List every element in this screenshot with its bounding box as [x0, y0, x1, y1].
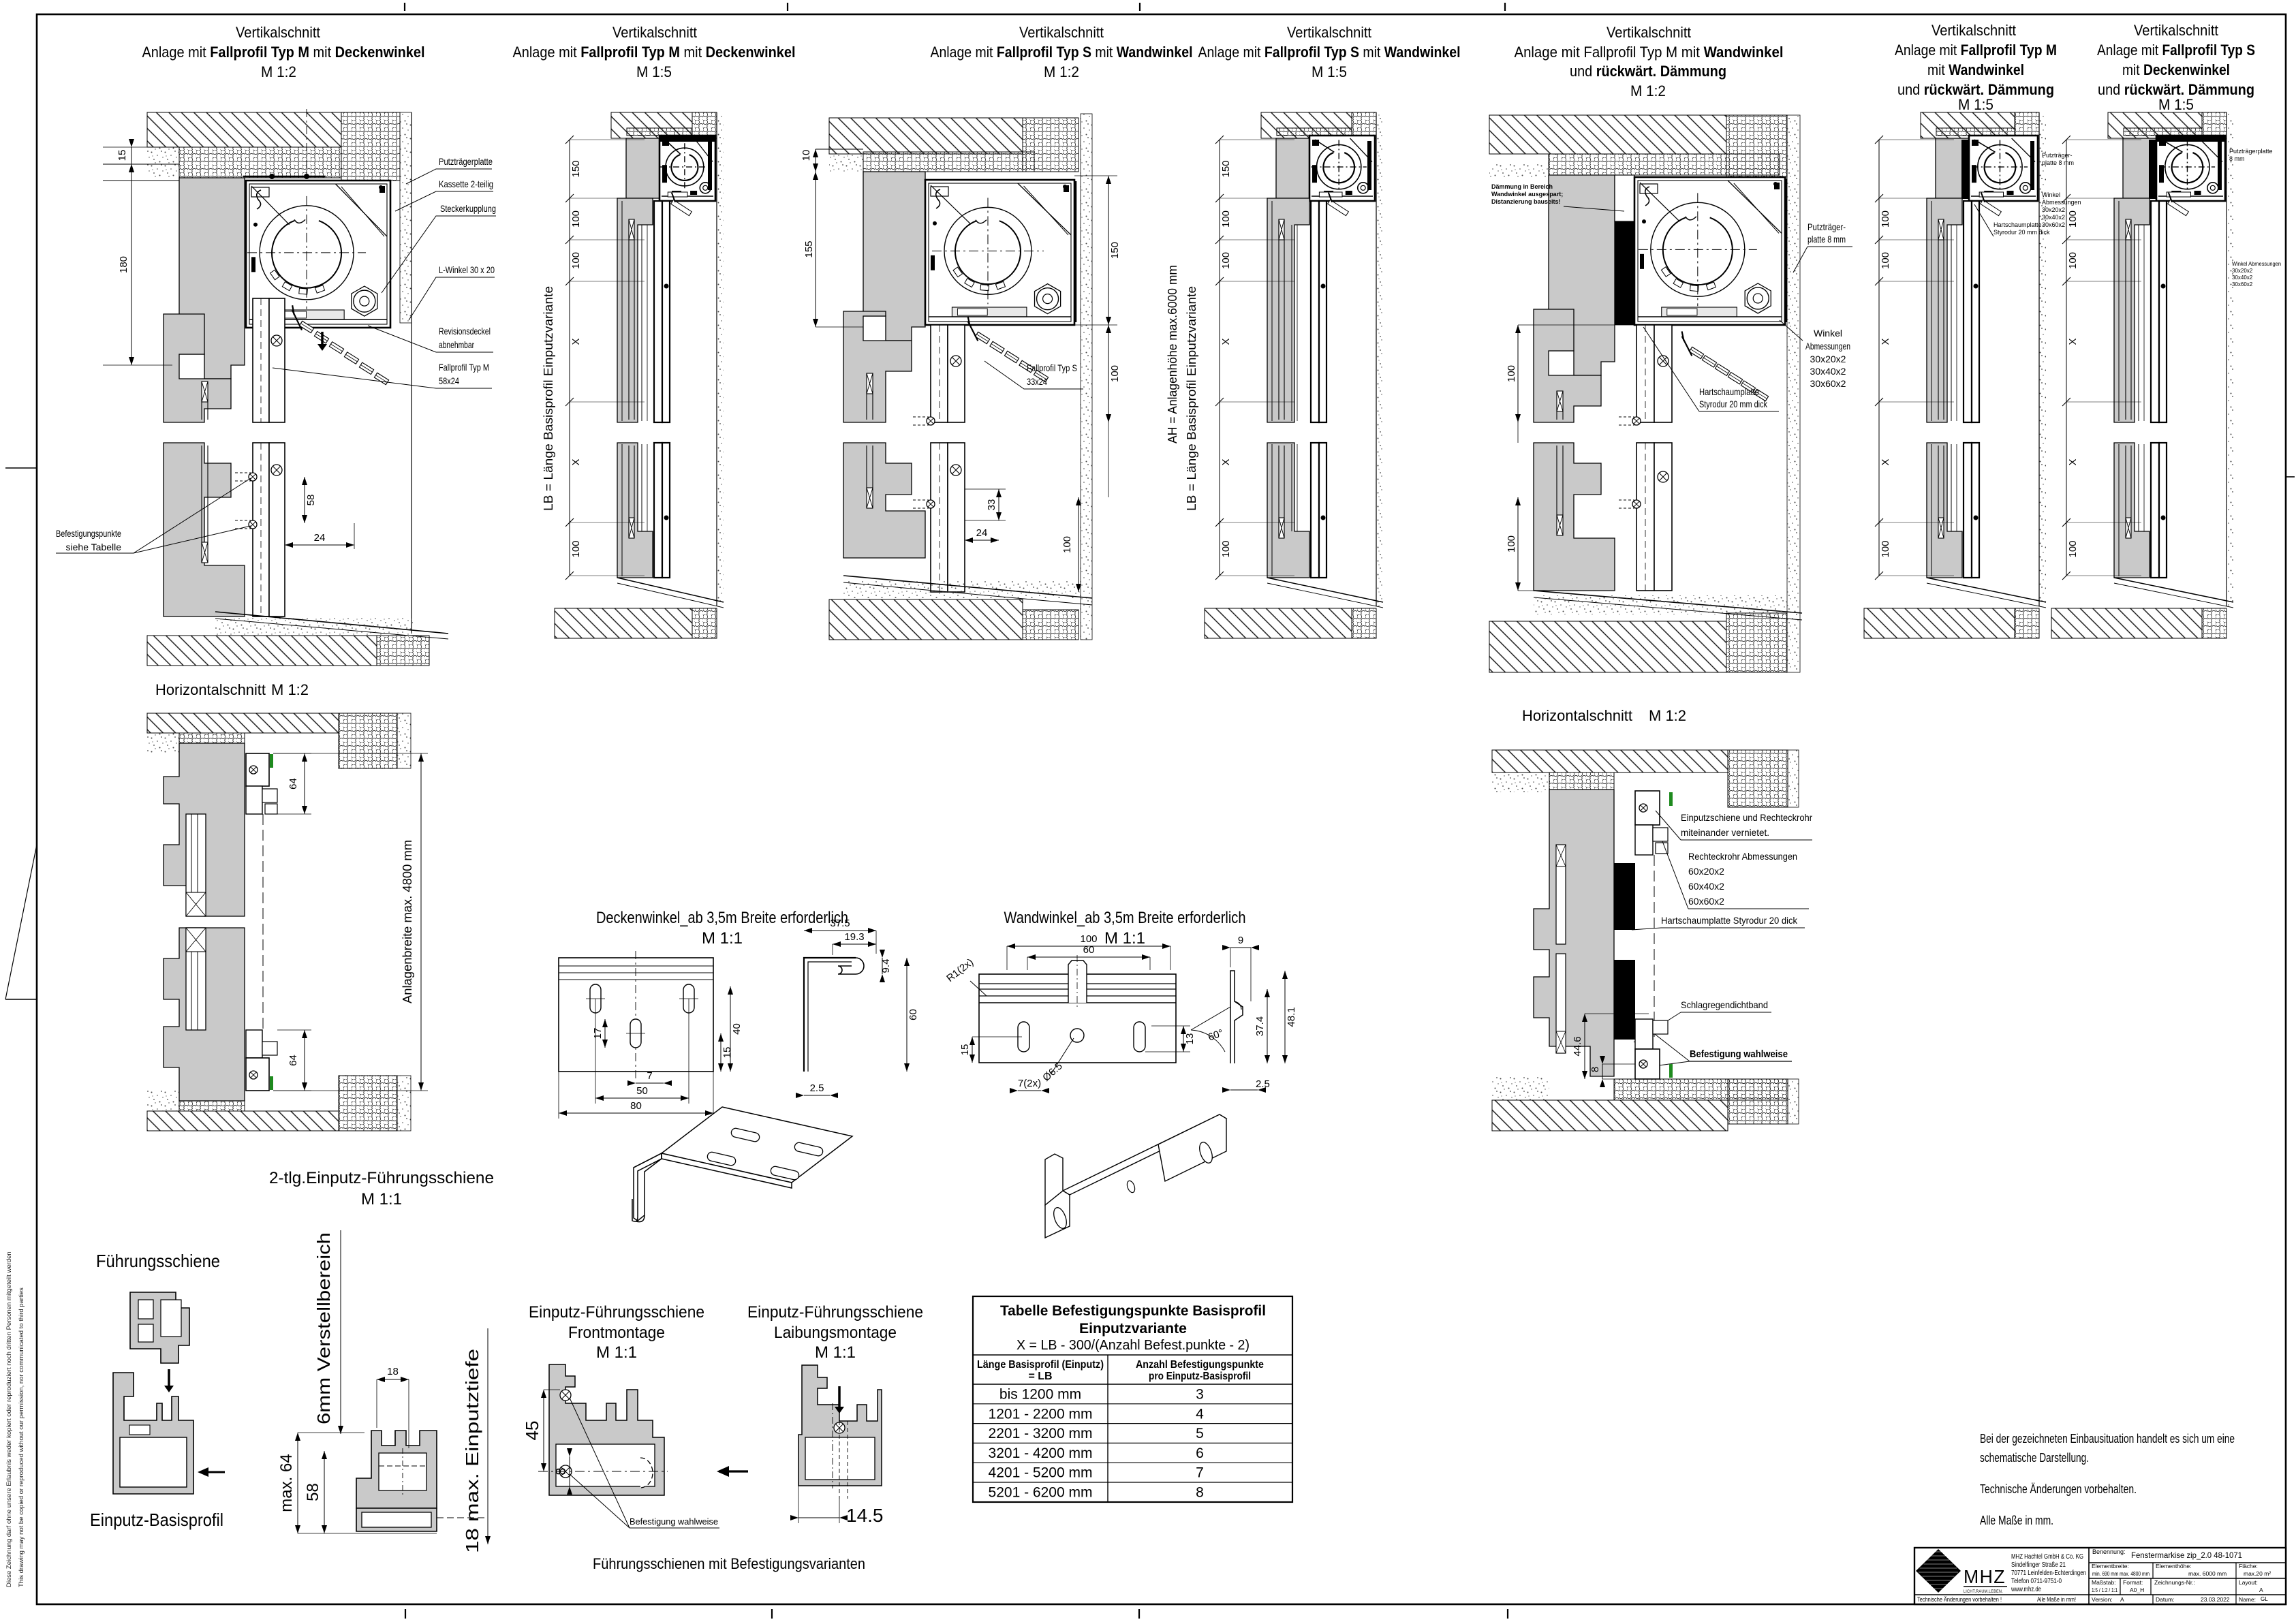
svg-text:Steckerkupplung: Steckerkupplung: [440, 203, 496, 214]
svg-text:X: X: [2067, 338, 2079, 345]
svg-text:100: 100: [2067, 210, 2079, 228]
svg-text:This drawing may not be copied: This drawing may not be copied or reprod…: [18, 1287, 25, 1587]
svg-text:mit Deckenwinkel: mit Deckenwinkel: [2122, 61, 2230, 78]
svg-text:Revisionsdeckel: Revisionsdeckel: [439, 326, 491, 337]
svg-text:Datum:: Datum:: [2156, 1596, 2174, 1603]
svg-text:Technische Änderungen vorbehal: Technische Änderungen vorbehalten.: [1980, 1482, 2137, 1496]
svg-text:Fallprofil Typ S: Fallprofil Typ S: [1027, 362, 1077, 373]
svg-text:M 1:2: M 1:2: [1630, 82, 1666, 99]
svg-text:AH = Anlagenhöhe max.6000 mm: AH = Anlagenhöhe max.6000 mm: [1166, 265, 1179, 443]
svg-text:150: 150: [1109, 242, 1121, 259]
svg-text:LB = Länge Basisprofil Einputz: LB = Länge Basisprofil Einputzvariante: [1185, 286, 1198, 511]
svg-text:100: 100: [1109, 365, 1121, 382]
svg-text:100: 100: [1880, 540, 1891, 557]
svg-text:3201 - 4200 mm: 3201 - 4200 mm: [989, 1446, 1093, 1461]
svg-text:Diese Zeichnung darf ohne unse: Diese Zeichnung darf ohne unsere Erlaubn…: [5, 1251, 13, 1587]
svg-text:www.mhz.de: www.mhz.de: [2011, 1586, 2041, 1593]
svg-text:Maßstab:: Maßstab:: [2092, 1579, 2115, 1586]
svg-text:Anlage mit Fallprofil Typ M mi: Anlage mit Fallprofil Typ M mit Deckenwi…: [142, 44, 425, 61]
svg-text:44.6: 44.6: [1572, 1036, 1583, 1056]
svg-text:100: 100: [2067, 540, 2079, 557]
svg-text:Hartschaumplatte Styrodur 20 d: Hartschaumplatte Styrodur 20 dick: [1661, 915, 1798, 926]
svg-text:24: 24: [976, 527, 988, 539]
svg-text:30x40x2: 30x40x2: [2232, 275, 2253, 281]
svg-text:Bei der gezeichneten Einbausit: Bei der gezeichneten Einbausituation han…: [1980, 1432, 2235, 1446]
svg-text:Anlage mit Fallprofil Typ S mi: Anlage mit Fallprofil Typ S mit Wandwink…: [1198, 44, 1461, 61]
svg-text:Name:: Name:: [2239, 1596, 2256, 1603]
svg-text:Elementhöhe:: Elementhöhe:: [2156, 1563, 2191, 1570]
svg-text:30x60x2: 30x60x2: [2042, 221, 2065, 228]
svg-text:Putzträgerplatte: Putzträgerplatte: [439, 156, 493, 167]
svg-text:M 1:2: M 1:2: [1649, 707, 1686, 724]
svg-text:13: 13: [1184, 1033, 1196, 1045]
svg-text:Anlage mit Fallprofil Typ M mi: Anlage mit Fallprofil Typ M mit Wandwink…: [1515, 44, 1784, 61]
svg-text:Fläche:: Fläche:: [2239, 1563, 2258, 1570]
svg-text:100: 100: [1506, 535, 1517, 552]
svg-text:M 1:1: M 1:1: [815, 1343, 856, 1362]
svg-text:siehe Tabelle: siehe Tabelle: [66, 542, 122, 552]
svg-text:abnehmbar: abnehmbar: [439, 339, 474, 350]
svg-text:X: X: [1220, 458, 1232, 465]
svg-text:Putzträgerplatte: Putzträgerplatte: [2229, 148, 2273, 155]
svg-text:60: 60: [1083, 944, 1095, 956]
svg-text:Tabelle Befestigungspunkte Bas: Tabelle Befestigungspunkte Basisprofil: [1000, 1303, 1266, 1319]
svg-text:Einputz-Basisprofil: Einputz-Basisprofil: [90, 1510, 223, 1530]
svg-text:Format:: Format:: [2123, 1579, 2143, 1586]
svg-text:Einputzvariante: Einputzvariante: [1079, 1321, 1187, 1337]
svg-text:miteinander vernietet.: miteinander vernietet.: [1681, 827, 1769, 838]
svg-text:Alle Maße in mm.: Alle Maße in mm.: [1980, 1514, 2053, 1527]
svg-text:18: 18: [387, 1366, 399, 1377]
svg-text:Kassette 2-teilig: Kassette 2-teilig: [439, 178, 493, 189]
svg-text:Einputzschiene und Rechteckroh: Einputzschiene und Rechteckrohr: [1681, 812, 1812, 823]
svg-text:Styrodur 20 mm dick: Styrodur 20 mm dick: [1699, 399, 1768, 409]
svg-text:Befestigung wahlweise: Befestigung wahlweise: [630, 1516, 718, 1527]
svg-text:bis 1200 mm: bis 1200 mm: [999, 1387, 1081, 1403]
svg-text:30x40x2: 30x40x2: [1810, 366, 1846, 377]
svg-text:Laibungsmontage: Laibungsmontage: [774, 1324, 897, 1342]
svg-text:platte 8 mm: platte 8 mm: [2042, 159, 2074, 166]
svg-text:X: X: [570, 458, 582, 465]
svg-text:60x40x2: 60x40x2: [1688, 881, 1724, 892]
svg-text:60x20x2: 60x20x2: [1688, 866, 1724, 877]
svg-text:18 max. Einputztiefe: 18 max. Einputztiefe: [462, 1349, 482, 1553]
svg-text:Winkel Abmessungen: Winkel Abmessungen: [2232, 261, 2281, 267]
svg-text:7: 7: [1196, 1465, 1204, 1481]
svg-text:100: 100: [570, 540, 582, 557]
svg-text:30x20x2: 30x20x2: [1810, 354, 1846, 364]
svg-text:M 1:1: M 1:1: [596, 1343, 637, 1362]
svg-text:7: 7: [647, 1070, 652, 1082]
svg-text:MHZ Hachtel GmbH & Co. KG: MHZ Hachtel GmbH & Co. KG: [2011, 1553, 2083, 1561]
svg-text:Schlagregendichtband: Schlagregendichtband: [1681, 999, 1768, 1010]
svg-text:M 1:2: M 1:2: [271, 681, 309, 698]
svg-text:64: 64: [288, 778, 299, 790]
svg-text:Sindelfinger Straße 21: Sindelfinger Straße 21: [2011, 1561, 2066, 1569]
svg-text:X: X: [570, 338, 582, 345]
svg-text:4: 4: [1196, 1406, 1204, 1422]
svg-text:2201 - 3200 mm: 2201 - 3200 mm: [989, 1426, 1093, 1441]
svg-text:Rechteckrohr Abmessungen: Rechteckrohr Abmessungen: [1688, 851, 1797, 862]
svg-text:9.4: 9.4: [880, 959, 892, 973]
svg-text:45: 45: [522, 1421, 542, 1441]
svg-text:Putzträger-: Putzträger-: [2042, 152, 2073, 159]
svg-text:M 1:2: M 1:2: [261, 63, 296, 80]
svg-text:Führungsschiene: Führungsschiene: [96, 1251, 220, 1271]
svg-text:37.4: 37.4: [1254, 1016, 1266, 1036]
svg-text:X: X: [2067, 458, 2079, 465]
svg-text:100: 100: [570, 252, 582, 269]
svg-text:Fallprofil Typ M: Fallprofil Typ M: [439, 362, 489, 373]
svg-text:Wandwinkel ausgespart;: Wandwinkel ausgespart;: [1491, 191, 1563, 198]
svg-text:5201 - 6200 mm: 5201 - 6200 mm: [989, 1485, 1093, 1501]
svg-text:8 mm: 8 mm: [2229, 155, 2245, 162]
svg-text:GL: GL: [2261, 1596, 2268, 1602]
svg-text:30x60x2: 30x60x2: [1810, 378, 1846, 389]
svg-text:Abmessungen: Abmessungen: [2042, 199, 2081, 206]
svg-text:Putzträger-: Putzträger-: [1808, 221, 1846, 232]
svg-text:100: 100: [1880, 252, 1891, 269]
svg-text:Hartschaumplatte: Hartschaumplatte: [1699, 386, 1759, 397]
svg-text:4201 - 5200 mm: 4201 - 5200 mm: [989, 1465, 1093, 1481]
svg-text:14.5: 14.5: [846, 1505, 884, 1526]
svg-text:Anlage mit Fallprofil Typ S: Anlage mit Fallprofil Typ S: [2097, 42, 2255, 59]
svg-text:A: A: [2259, 1587, 2263, 1593]
svg-text:LB = Länge Basisprofil Einputz: LB = Länge Basisprofil Einputzvariante: [542, 286, 555, 511]
svg-text:Fenstermarkise zip_2.0 48-1: Fenstermarkise zip_2.0 48-1071: [2131, 1552, 2242, 1560]
svg-text:Anlage mit Fallprofil Typ M mi: Anlage mit Fallprofil Typ M mit Deckenwi…: [513, 44, 796, 61]
svg-text:60: 60: [907, 1009, 919, 1020]
svg-text:1201 - 2200 mm: 1201 - 2200 mm: [989, 1406, 1093, 1422]
svg-text:Layout:: Layout:: [2239, 1579, 2258, 1586]
svg-text:58x24: 58x24: [439, 375, 459, 386]
svg-text:Führungsschienen mit Befestigu: Führungsschienen mit Befestigungsvariant…: [593, 1555, 865, 1572]
svg-text:Technische Änderungen vorbehal: Technische Änderungen vorbehalten !: [1917, 1596, 2002, 1603]
svg-text:37.5: 37.5: [830, 918, 850, 929]
svg-text:19.3: 19.3: [844, 931, 864, 943]
svg-text:Elementbreite:: Elementbreite:: [2092, 1563, 2129, 1570]
svg-text:100: 100: [1506, 365, 1517, 382]
svg-text:Befestigung wahlweise: Befestigung wahlweise: [1690, 1048, 1788, 1060]
svg-text:180: 180: [118, 256, 129, 273]
svg-text:100: 100: [570, 210, 582, 228]
svg-text:Länge Basisprofil (Einputz): Länge Basisprofil (Einputz): [977, 1359, 1104, 1371]
svg-text:Deckenwinkel_ab 3,5m Breite er: Deckenwinkel_ab 3,5m Breite erforderlich: [596, 909, 848, 927]
svg-text:M 1:1: M 1:1: [1104, 929, 1145, 948]
svg-text:max. 64: max. 64: [277, 1454, 296, 1512]
svg-text:24: 24: [314, 532, 326, 544]
svg-text:6mm Verstellbereich: 6mm Verstellbereich: [313, 1232, 334, 1424]
svg-text:Frontmontage: Frontmontage: [568, 1324, 665, 1342]
svg-text:Benennung:: Benennung:: [2092, 1548, 2126, 1555]
svg-text:Vertikalschnitt: Vertikalschnitt: [236, 24, 320, 41]
svg-text:M 1:2: M 1:2: [1044, 63, 1079, 80]
svg-text:Winkel: Winkel: [2042, 191, 2060, 198]
svg-text:Anlage mit Fallprofil Typ M: Anlage mit Fallprofil Typ M: [1895, 42, 2057, 59]
svg-text:Dämmung in Bereich: Dämmung in Bereich: [1491, 183, 1553, 190]
svg-text:40: 40: [731, 1023, 743, 1035]
svg-text:Horizontalschnitt: Horizontalschnitt: [1522, 707, 1632, 724]
svg-text:100: 100: [1220, 252, 1232, 269]
svg-text:X: X: [1220, 338, 1232, 345]
svg-text:50: 50: [636, 1085, 648, 1097]
svg-text:Abmessungen: Abmessungen: [1805, 341, 1850, 352]
svg-text:M 1:1: M 1:1: [702, 929, 743, 948]
svg-text:M 1:5: M 1:5: [1312, 63, 1347, 80]
svg-text:Vertikalschnitt: Vertikalschnitt: [612, 24, 697, 41]
svg-text:Vertikalschnitt: Vertikalschnitt: [1019, 24, 1104, 41]
svg-text:Anlagenbreite max. 4800 mm: Anlagenbreite max. 4800 mm: [401, 840, 414, 1003]
svg-text:Winkel: Winkel: [1814, 328, 1842, 339]
svg-text:A: A: [2120, 1596, 2124, 1603]
svg-text:Anzahl Befestigungspunkte: Anzahl Befestigungspunkte: [1136, 1359, 1264, 1371]
svg-text:58: 58: [304, 1483, 322, 1501]
svg-text:min. 690 mm max. 4800 mm: min. 690 mm max. 4800 mm: [2092, 1570, 2150, 1577]
svg-text:Einputz-Führungsschiene: Einputz-Führungsschiene: [747, 1303, 923, 1322]
svg-text:33: 33: [986, 499, 997, 511]
svg-text:3: 3: [1196, 1387, 1204, 1403]
svg-text:23.03.2022: 23.03.2022: [2201, 1596, 2230, 1603]
svg-text:58: 58: [305, 495, 317, 506]
svg-text:60x60x2: 60x60x2: [1688, 896, 1724, 907]
svg-text:max. 6000 mm: max. 6000 mm: [2188, 1570, 2227, 1577]
svg-text:X: X: [1880, 338, 1891, 345]
svg-text:30x20x2: 30x20x2: [2232, 268, 2253, 274]
svg-text:150: 150: [1220, 160, 1232, 177]
svg-text:17: 17: [592, 1028, 604, 1040]
svg-text:Hartschaumplatte: Hartschaumplatte: [1994, 221, 2042, 228]
svg-text:2.5: 2.5: [810, 1082, 824, 1094]
svg-text:Vertikalschnitt: Vertikalschnitt: [2134, 22, 2218, 39]
svg-text:Anlage mit Fallprofil Typ S mi: Anlage mit Fallprofil Typ S mit Wandwink…: [931, 44, 1193, 61]
svg-text:M 1:5: M 1:5: [1958, 96, 1994, 113]
svg-text:9: 9: [1238, 935, 1243, 946]
svg-text:Zeichnungs-Nr.:: Zeichnungs-Nr.:: [2154, 1579, 2195, 1586]
svg-text:und rückwärt. Dämmung: und rückwärt. Dämmung: [1570, 63, 1726, 80]
svg-text:Version:: Version:: [2092, 1596, 2113, 1603]
svg-text:max.20 m²: max.20 m²: [2244, 1570, 2271, 1577]
svg-text:Vertikalschnitt: Vertikalschnitt: [1607, 24, 1691, 41]
svg-text:30x40x2: 30x40x2: [2042, 214, 2065, 221]
svg-text:10: 10: [801, 150, 812, 161]
svg-text:X: X: [1880, 458, 1891, 465]
svg-text:LICHT.RAUM.LEBEN.: LICHT.RAUM.LEBEN.: [1964, 1589, 2003, 1594]
svg-text:Befestigungspunkte: Befestigungspunkte: [56, 528, 121, 539]
svg-text:mit Wandwinkel: mit Wandwinkel: [1927, 61, 2024, 78]
svg-text:Distanzierung bauseits!: Distanzierung bauseits!: [1491, 198, 1561, 205]
svg-text:100: 100: [1080, 933, 1097, 945]
svg-text:155: 155: [803, 240, 815, 257]
svg-text:100: 100: [1061, 536, 1073, 553]
svg-text:150: 150: [570, 160, 582, 177]
svg-text:100: 100: [1880, 210, 1891, 228]
svg-text:7(2x): 7(2x): [1018, 1078, 1041, 1089]
svg-text:30x20x2: 30x20x2: [2042, 206, 2065, 213]
svg-text:schematische Darstellung.: schematische Darstellung.: [1980, 1451, 2089, 1465]
svg-text:1:5 / 1:2 / 1:1: 1:5 / 1:2 / 1:1: [2092, 1587, 2117, 1593]
svg-text:= LB: = LB: [1028, 1371, 1052, 1382]
svg-text:100: 100: [1220, 540, 1232, 557]
svg-text:A0_H: A0_H: [2130, 1587, 2144, 1593]
svg-text:15: 15: [959, 1044, 971, 1056]
svg-text:33x24: 33x24: [1027, 376, 1047, 387]
svg-text:100: 100: [1220, 210, 1232, 228]
svg-text:Vertikalschnitt: Vertikalschnitt: [1932, 22, 2016, 39]
svg-text:8: 8: [1196, 1485, 1204, 1501]
svg-text:platte 8 mm: platte 8 mm: [1808, 234, 1846, 245]
svg-text:2.5: 2.5: [1256, 1078, 1270, 1090]
svg-text:30x60x2: 30x60x2: [2232, 281, 2253, 287]
svg-text:L-Winkel 30 x 20: L-Winkel 30 x 20: [439, 264, 495, 275]
svg-text:8: 8: [1589, 1067, 1601, 1072]
svg-text:6: 6: [1196, 1446, 1204, 1461]
svg-text:Einputz-Führungsschiene: Einputz-Führungsschiene: [529, 1303, 704, 1322]
svg-text:15: 15: [117, 150, 128, 161]
svg-text:15: 15: [722, 1047, 733, 1059]
svg-text:70771 Leinfelden-Echterdingen: 70771 Leinfelden-Echterdingen: [2011, 1570, 2086, 1577]
svg-text:M 1:5: M 1:5: [2158, 96, 2194, 113]
svg-text:Styrodur 20 mm dick: Styrodur 20 mm dick: [1994, 229, 2050, 236]
svg-text:pro Einputz-Basisprofil: pro Einputz-Basisprofil: [1149, 1371, 1251, 1382]
svg-text:48.1: 48.1: [1286, 1007, 1297, 1027]
svg-text:M 1:5: M 1:5: [636, 63, 672, 80]
svg-text:Telefon 0711-9751-0: Telefon 0711-9751-0: [2011, 1578, 2062, 1585]
svg-text:Vertikalschnitt: Vertikalschnitt: [1287, 24, 1371, 41]
svg-text:100: 100: [2067, 252, 2079, 269]
svg-text:MHZ: MHZ: [1964, 1566, 2006, 1587]
svg-text:5: 5: [1196, 1426, 1204, 1441]
svg-text:64: 64: [288, 1055, 299, 1066]
svg-text:M 1:1: M 1:1: [361, 1190, 402, 1208]
svg-text:2-tlg.Einputz-Führungsschiene: 2-tlg.Einputz-Führungsschiene: [269, 1169, 494, 1187]
svg-text:Horizontalschnitt: Horizontalschnitt: [155, 681, 266, 698]
svg-text:Alle Maße in mm!: Alle Maße in mm!: [2037, 1596, 2076, 1603]
svg-text:X = LB - 300/(Anzahl Befest.pu: X = LB - 300/(Anzahl Befest.punkte - 2): [1017, 1338, 1250, 1353]
svg-text:Wandwinkel_ab 3,5m Breite erfo: Wandwinkel_ab 3,5m Breite erforderlich: [1004, 909, 1246, 927]
svg-text:80: 80: [630, 1100, 642, 1112]
